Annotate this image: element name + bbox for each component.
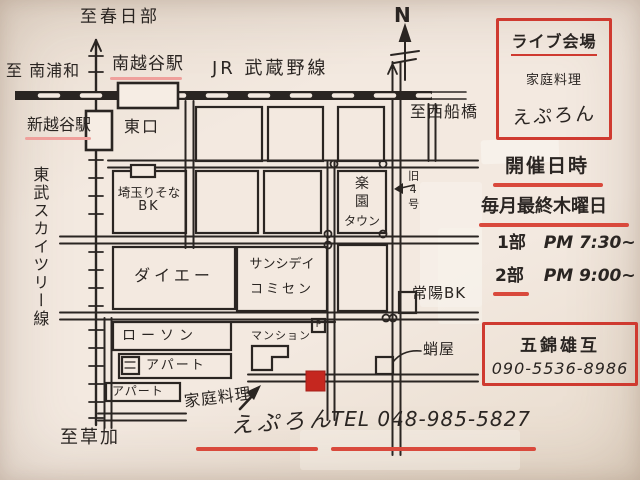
rakuen-town-line3: タウン [344, 214, 380, 229]
apartment1-label: アパート [146, 359, 206, 374]
jr-railway-line [15, 91, 466, 100]
daiei-label: ダイエー [113, 267, 235, 285]
lawson-label: ローソン [122, 328, 198, 344]
contact-phone: 090-5536-8986 [492, 359, 629, 378]
footer-name-underline [196, 447, 318, 451]
parking-label: P [312, 319, 325, 332]
schedule-part1: 1部 PM 7:30~ [497, 234, 636, 254]
takoya-label: 蛸屋 [423, 341, 455, 358]
venue-info-box: ライブ会場 家庭料理 えぷろん [496, 18, 612, 140]
dest-nishi-funabashi-label: 至西船橋 [410, 103, 478, 121]
station-underline [110, 77, 182, 80]
contact-name: 五錦雄互 [520, 331, 600, 356]
resona-bank-label: 埼玉りそな BK [114, 186, 184, 215]
resona-bank-line2: BK [138, 200, 159, 215]
tobu-line-label: 東武スカイツリー線 [30, 166, 48, 351]
part1-label: 1部 [497, 233, 526, 253]
part1-time: PM 7:30~ [544, 233, 636, 253]
rakuen-town-char2: 園 [355, 194, 369, 212]
venue-box-heading: ライブ会場 [511, 28, 596, 56]
venue-box-name: えぷろん [511, 99, 596, 130]
part2-time: PM 9:00~ [544, 266, 636, 286]
footer-tel-underline [331, 447, 536, 451]
east-exit-label: 東口 [124, 118, 160, 136]
community-center-line2: コミセン [250, 283, 314, 298]
old-route4-label: 旧4号 [406, 170, 419, 230]
venue-marker [306, 371, 325, 391]
community-center-label: サンシデイ コミセン [237, 258, 327, 298]
compass-n-label: N [394, 4, 411, 27]
schedule-frequency: 毎月最終木曜日 [481, 197, 607, 218]
dest-soka-label: 至草加 [60, 428, 120, 449]
contact-info-box: 五錦雄互 090-5536-8986 [482, 322, 638, 386]
schedule-part2: 2部 PM 9:00~ [495, 267, 636, 287]
station-underline [25, 137, 91, 140]
schedule-heading: 開催日時 [505, 156, 589, 178]
city-blocks [106, 107, 421, 401]
part2-label: 2部 [495, 266, 524, 286]
station-minami-koshigaya-label: 南越谷駅 [112, 55, 184, 75]
footer-tel: TEL 048-985-5827 [331, 408, 531, 431]
rakuen-town-label: 楽 園 タウン [338, 176, 386, 229]
station-shin-koshigaya-label: 新越谷駅 [27, 116, 91, 134]
hand-drawn-map: 至春日部 至 南浦和 JR 武蔵野線 N 至西船橋 南越谷駅 新越谷駅 東口 東… [0, 0, 640, 480]
community-center-line1: サンシデイ [249, 258, 314, 273]
schedule-heading-underline [493, 183, 603, 187]
part2-underline [493, 292, 529, 296]
resona-bank-line1: 埼玉りそな [118, 186, 181, 200]
mansion-label: マンション [251, 330, 311, 343]
dest-minami-urawa-label: 至 南浦和 [6, 62, 80, 80]
rakuen-town-char1: 楽 [355, 176, 369, 194]
venue-box-type: 家庭料理 [526, 69, 582, 88]
dest-kasukabe-label: 至春日部 [80, 8, 160, 28]
apartment2-label: アパート [112, 385, 164, 399]
jr-line-label: JR 武蔵野線 [212, 59, 329, 80]
joyo-bank-label: 常陽BK [412, 285, 466, 302]
schedule-frequency-underline [479, 223, 629, 227]
